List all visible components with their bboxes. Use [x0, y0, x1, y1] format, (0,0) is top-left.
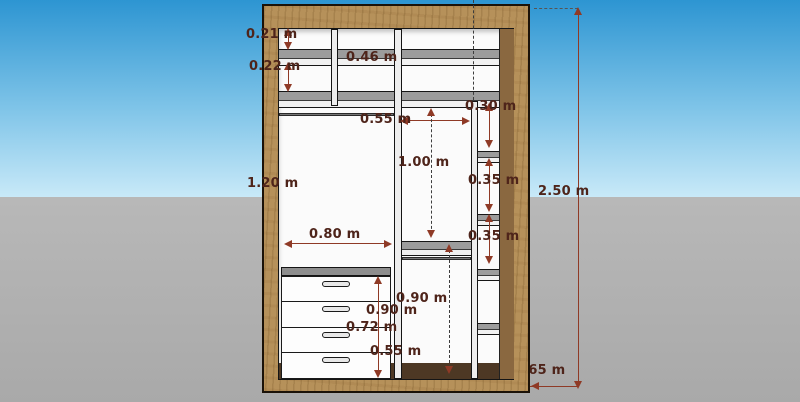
- shelf-surface: [478, 323, 499, 330]
- wardrobe-cabinet: [262, 4, 530, 393]
- inner-right-wall: [499, 29, 514, 379]
- top-divider: [331, 29, 338, 106]
- shelf-surface: [478, 269, 499, 276]
- drawer-handle: [322, 281, 350, 287]
- shelf-edge: [478, 221, 499, 226]
- drawer-handle: [322, 357, 350, 363]
- drawer-2: [282, 302, 390, 327]
- right-shelf-2: [478, 214, 499, 226]
- second-shelf: [279, 91, 499, 108]
- right-divider: [471, 101, 478, 379]
- wardrobe-interior: [278, 28, 514, 380]
- drawer-unit-body: [281, 276, 391, 379]
- middle-shelf: [402, 241, 471, 256]
- middle-divider: [394, 29, 402, 379]
- shelf-edge: [478, 158, 499, 163]
- right-shelf-3: [478, 269, 499, 281]
- right-shelf-4: [478, 323, 499, 335]
- shelf-surface: [402, 241, 471, 250]
- middle-hanging-rod: [402, 257, 471, 260]
- shelf-edge: [279, 101, 499, 108]
- right-shelf-1: [478, 151, 499, 163]
- shelf-edge: [402, 250, 471, 256]
- shelf-edge: [478, 276, 499, 281]
- shelf-edge: [478, 330, 499, 335]
- drawer-1: [282, 277, 390, 302]
- scene: 0.21 m 0.22 m 0.46 m 0.30 m 0.35 m 0.35 …: [0, 0, 800, 402]
- shelf-surface: [279, 49, 499, 59]
- drawer-handle: [322, 306, 350, 312]
- shelf-edge: [279, 59, 499, 66]
- left-hanging-rod: [279, 113, 394, 116]
- shelf-surface: [279, 91, 499, 101]
- shelf-surface: [478, 151, 499, 158]
- top-shelf: [279, 49, 499, 66]
- drawer-unit-top: [281, 267, 391, 276]
- drawer-4: [282, 353, 390, 378]
- drawer-3: [282, 328, 390, 353]
- drawer-handle: [322, 332, 350, 338]
- shelf-surface: [478, 214, 499, 221]
- drawer-unit: [281, 267, 391, 379]
